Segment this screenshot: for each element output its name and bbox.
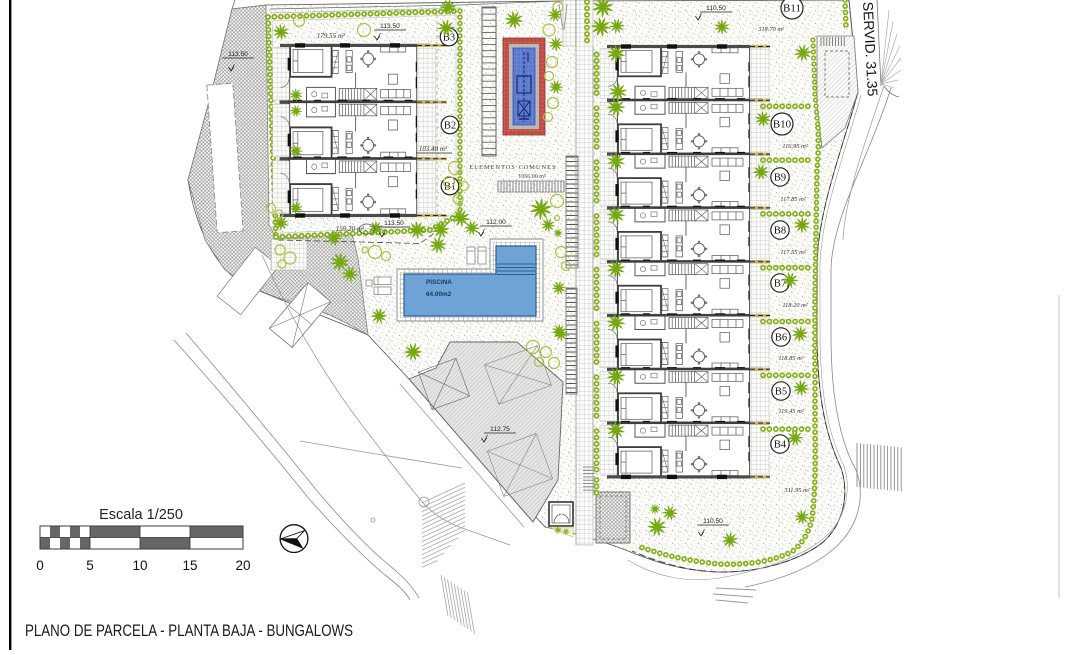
svg-text:118.85 m²: 118.85 m² — [778, 355, 803, 362]
svg-text:B4: B4 — [774, 440, 787, 451]
svg-text:ELEMENTOS COMUNES: ELEMENTOS COMUNES — [469, 164, 556, 171]
svg-text:B9: B9 — [774, 173, 786, 184]
svg-text:179.55 m²: 179.55 m² — [317, 32, 346, 40]
svg-text:15: 15 — [182, 558, 197, 573]
svg-text:112.75: 112.75 — [490, 426, 510, 433]
svg-text:B11: B11 — [783, 3, 801, 15]
svg-text:20: 20 — [235, 558, 250, 573]
svg-text:B5: B5 — [775, 387, 787, 398]
svg-text:110.50: 110.50 — [706, 5, 726, 12]
svg-text:5: 5 — [86, 558, 94, 573]
svg-text:113.50: 113.50 — [380, 23, 400, 30]
svg-text:117.85 m²: 117.85 m² — [780, 196, 805, 203]
svg-text:B10: B10 — [773, 119, 792, 131]
svg-text:B6: B6 — [775, 333, 787, 344]
svg-text:64.00m2: 64.00m2 — [426, 291, 452, 298]
svg-text:112.00: 112.00 — [486, 219, 506, 226]
svg-text:110.50: 110.50 — [703, 518, 723, 525]
svg-text:B2: B2 — [444, 121, 456, 132]
svg-text:311.95 m²: 311.95 m² — [783, 487, 809, 494]
svg-text:PLANO DE PARCELA - PLANTA BAJA: PLANO DE PARCELA - PLANTA BAJA - BUNGALO… — [25, 621, 353, 640]
svg-text:318.70 m²: 318.70 m² — [757, 26, 784, 33]
svg-text:113.50: 113.50 — [384, 220, 404, 227]
svg-text:10: 10 — [132, 558, 147, 573]
svg-text:1056.00 m²: 1056.00 m² — [518, 174, 546, 180]
svg-text:118.20 m²: 118.20 m² — [782, 302, 807, 309]
svg-text:117.55 m²: 117.55 m² — [780, 249, 805, 256]
svg-text:113.50: 113.50 — [228, 51, 248, 58]
svg-text:103.40 m²: 103.40 m² — [419, 145, 448, 153]
svg-text:PISCINA: PISCINA — [426, 279, 452, 286]
svg-text:116.95 m²: 116.95 m² — [782, 143, 807, 150]
svg-text:119.45 m²: 119.45 m² — [778, 408, 803, 415]
svg-text:0: 0 — [36, 558, 44, 573]
svg-text:B8: B8 — [774, 226, 786, 237]
svg-text:Escala 1/250: Escala 1/250 — [99, 507, 183, 523]
